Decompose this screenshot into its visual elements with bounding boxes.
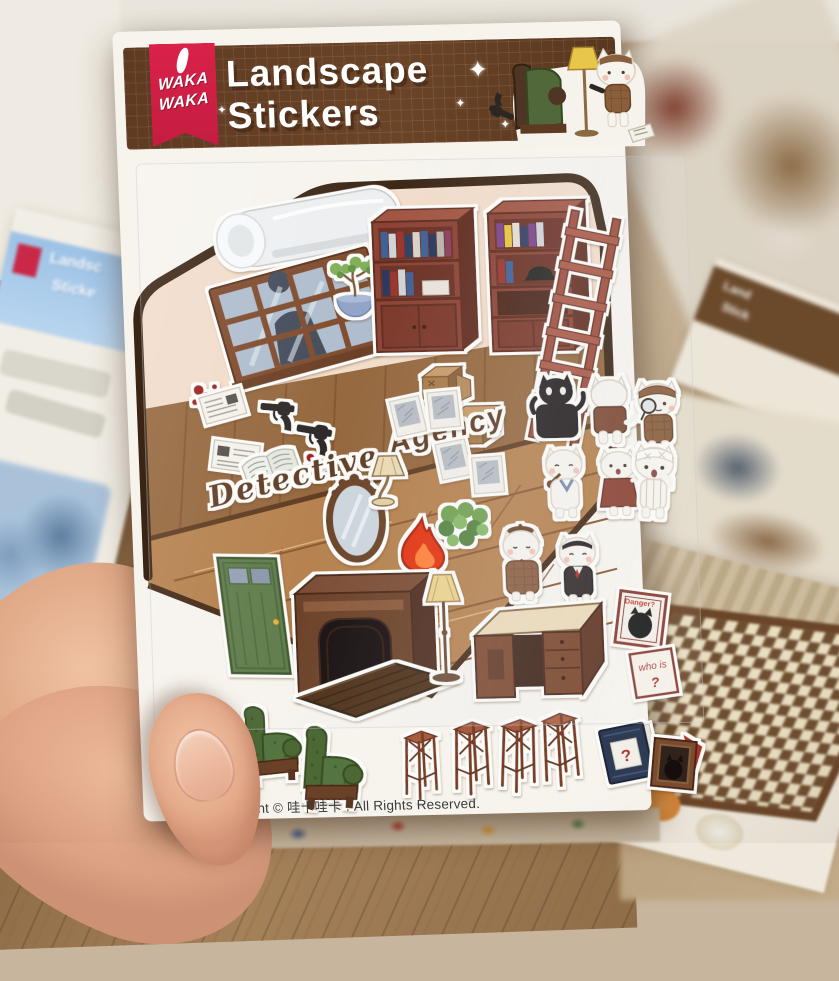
mystery-book-sticker[interactable]: ?: [599, 721, 660, 784]
polaroid-photo-sticker[interactable]: [472, 456, 505, 494]
sparkle-icon: ✦: [455, 96, 466, 110]
cat-beret-plaid-coat-sticker[interactable]: [502, 523, 542, 601]
title-line2: Stickers: [227, 91, 431, 138]
bar-stool-sticker[interactable]: [542, 712, 581, 786]
bar-stool-sticker[interactable]: [454, 722, 491, 795]
brand-flick: [175, 47, 190, 75]
polaroid-photo-sticker[interactable]: [427, 390, 461, 429]
header-illustration: [505, 38, 649, 153]
white-cat-blob: [692, 809, 747, 856]
sparkle-icon: ✦: [467, 56, 488, 85]
brand-ribbon: WAKA WAKA: [149, 43, 219, 147]
who-is-note-sticker[interactable]: who is ?: [630, 648, 679, 698]
title-line1: Landscape: [225, 49, 429, 96]
bar-stool-sticker[interactable]: [404, 731, 439, 799]
bandaged-cat-sticker[interactable]: [634, 445, 674, 520]
detective-cat-monocle-sticker[interactable]: [637, 381, 680, 453]
framed-black-cat-sticker[interactable]: [651, 732, 703, 790]
bar-stool-sticker[interactable]: [502, 719, 536, 791]
sparkle-icon: ✦: [362, 114, 374, 130]
sparkle-icon: ✦: [217, 103, 227, 116]
sheet-title: Landscape Stickers: [225, 49, 431, 138]
sheet-header: WAKA WAKA Landscape Stickers ✦ ✦ ✦ ✦ ✦: [123, 37, 619, 150]
danger-poster-sticker[interactable]: Danger?: [615, 591, 667, 649]
writing-desk-sticker[interactable]: [473, 603, 605, 698]
bookshelf-with-cabinet-sticker[interactable]: [372, 208, 480, 352]
butler-cat-sticker[interactable]: [559, 535, 598, 605]
blue-sheet-sticker-blob: [4, 388, 107, 439]
thumbnail: [165, 722, 242, 809]
